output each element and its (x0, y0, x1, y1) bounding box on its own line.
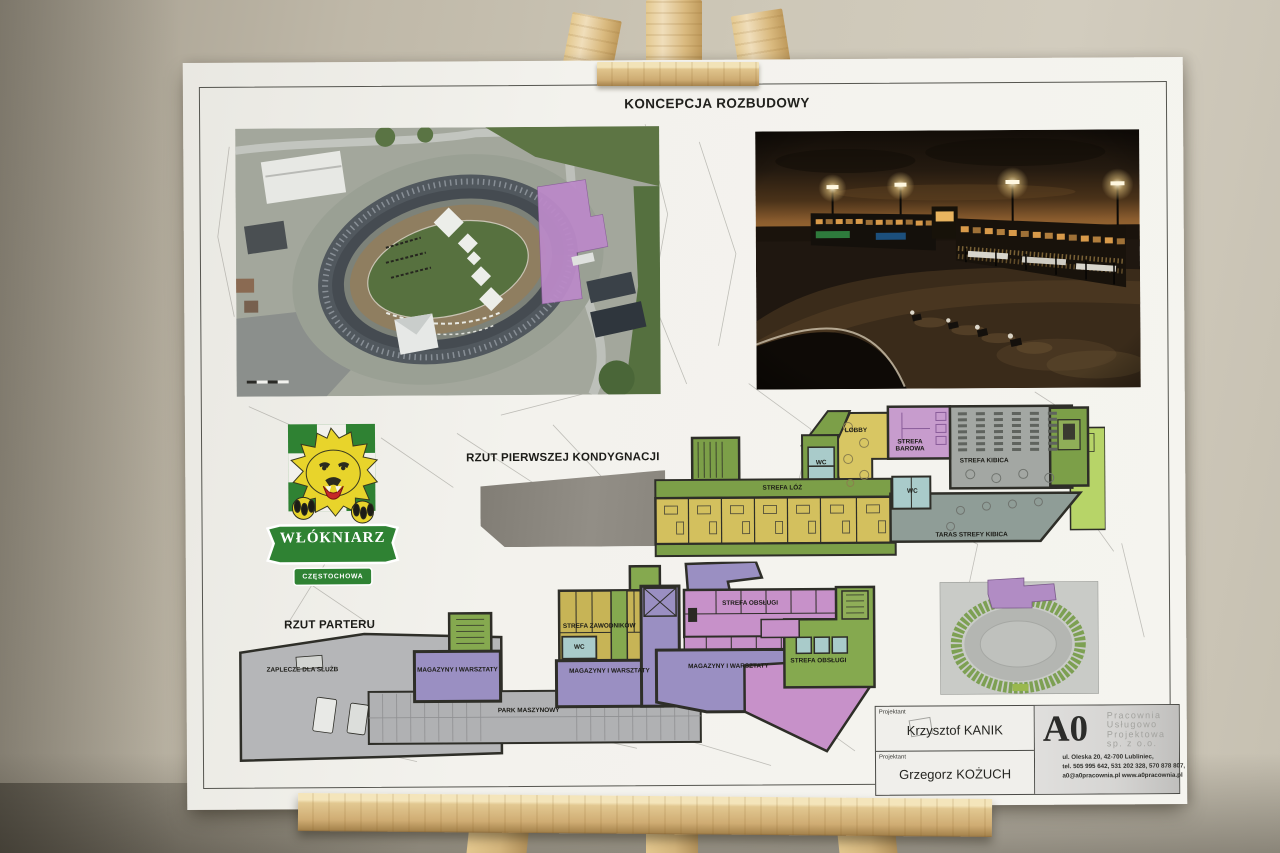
zone-label-lobby: LOBBY (845, 428, 867, 435)
company-logo: A0 (1043, 708, 1088, 751)
company-contact: ul. Oleska 20, 42-700 Lubliniec, tel. 50… (1062, 752, 1151, 780)
company-name-line: sp. z o.o. (1107, 739, 1166, 749)
designer-name-1: Krzysztof KANIK (876, 722, 1034, 738)
scale-bar (247, 380, 289, 383)
designers-column: Projektant Krzysztof KANIK Projektant Gr… (876, 706, 1036, 795)
wall-shadow-left (0, 0, 180, 853)
company-name: Pracownia Usługowo Projektowa sp. z o.o. (1107, 711, 1166, 749)
club-name: WŁÓKNIARZ (264, 530, 402, 548)
zone-label-workshops-3: MAGAZYNY I WARSZTATY (688, 663, 769, 670)
title-block: Projektant Krzysztof KANIK Projektant Gr… (875, 704, 1181, 796)
company-stamp: A0 Pracownia Usługowo Projektowa sp. z o… (1035, 705, 1180, 794)
site-plan-diagram (936, 575, 1105, 700)
zone-label-boxes: STREFA LÓŻ (763, 485, 803, 492)
company-phones: tel. 505 995 642, 531 202 328, 570 878 8… (1062, 761, 1151, 771)
zone-label-workshops-2: MAGAZYNY I WARSZTATY (569, 668, 650, 675)
zone-label-service-top: STREFA OBSŁUGI (722, 600, 778, 607)
concept-board: KONCEPCJA ROZBUDOWY (183, 57, 1188, 810)
designer-cell-2: Projektant Grzegorz KOŻUCH (876, 750, 1034, 794)
wood-grain (597, 62, 759, 86)
easel-tray-ledge (298, 793, 992, 837)
photo-of-concept-board-on-easel: KONCEPCJA ROZBUDOWY (0, 0, 1280, 853)
zone-label-riders: STREFA ZAWODNIKÓW (563, 623, 636, 630)
zone-label-wc-left: WC (816, 460, 827, 467)
zone-label-bar: STREFA BAROWA (893, 439, 926, 453)
wood-grain (298, 793, 992, 837)
aerial-photo-stadium (235, 126, 661, 397)
company-email-web: a0@a0pracownia.pl www.a0pracownia.pl (1062, 771, 1151, 781)
zone-label-machine-park: PARK MASZYNOWY (498, 707, 560, 714)
company-address: ul. Oleska 20, 42-700 Lubliniec, (1062, 752, 1151, 762)
designer-role-label: Projektant (879, 753, 906, 760)
zone-label-terrace: TARAS STREFY KIBICA (935, 532, 1007, 539)
night-render-grandstand (755, 129, 1141, 389)
designer-name-2: Grzegorz KOŻUCH (876, 766, 1034, 782)
zone-label-services: ZAPLECZE DLA SŁUŻB (267, 667, 339, 674)
ground-floor-plan: ZAPLECZE DLA SŁUŻB MAGAZYNY I WARSZTATY … (236, 561, 877, 770)
zone-label-workshops-1: MAGAZYNY I WARSZTATY (417, 667, 498, 674)
zone-label-wc: WC (574, 644, 585, 651)
easel-clamp-bar (597, 62, 759, 86)
first-floor-plan: LOBBY STREFA BAROWA STREFA KIBICA WC STR… (650, 397, 1106, 565)
zone-label-wc-right: WC (907, 488, 918, 495)
designer-cell-1: Projektant Krzysztof KANIK (876, 706, 1034, 751)
first-floor-heading: RZUT PIERWSZEJ KONDYGNACJI (466, 451, 660, 464)
designer-role-label: Projektant (879, 709, 906, 716)
zone-label-fans: STREFA KIBICA (960, 458, 1009, 465)
zone-label-service-bottom: STREFA OBSŁUGI (790, 658, 846, 665)
